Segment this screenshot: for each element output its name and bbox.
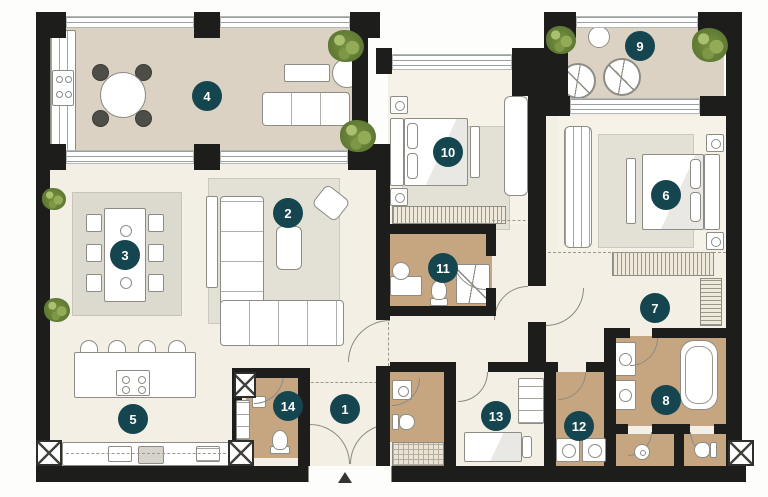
wall-segment [528, 96, 546, 286]
pillow [407, 153, 418, 179]
wall-segment [652, 328, 730, 338]
room-marker-5[interactable]: 5 [118, 404, 148, 434]
wall-segment [652, 424, 690, 434]
wall-segment [390, 362, 456, 372]
bed-bench [626, 158, 636, 224]
bed-bench [470, 126, 480, 178]
room-marker-4[interactable]: 4 [192, 81, 222, 111]
plant [546, 26, 576, 54]
maid-bed [464, 432, 522, 462]
plant [340, 120, 376, 152]
room-marker-10[interactable]: 10 [433, 137, 463, 167]
room-marker-8[interactable]: 8 [651, 385, 681, 415]
plant [328, 30, 364, 62]
room-marker-11[interactable]: 11 [428, 253, 458, 283]
room-marker-13[interactable]: 13 [481, 401, 511, 431]
wardrobe [700, 278, 722, 326]
toilet-bowl [399, 414, 415, 430]
room-marker-6[interactable]: 6 [651, 180, 681, 210]
vanity-counter [390, 276, 422, 296]
dining-chair [148, 274, 164, 292]
plant [692, 28, 728, 62]
wall-segment [544, 96, 570, 116]
shower-head [634, 444, 650, 460]
window [392, 54, 512, 70]
column [728, 440, 754, 466]
dining-chair [148, 214, 164, 232]
shaft [234, 372, 256, 398]
wall-segment [388, 224, 492, 234]
floor-plan: 1 2 3 4 5 6 7 8 9 10 11 12 13 14 [0, 0, 768, 497]
wall-segment [444, 372, 456, 466]
wall-segment [726, 12, 742, 472]
toilet-bowl [431, 280, 447, 300]
railing [220, 16, 350, 28]
window [66, 150, 194, 164]
wall-segment [486, 224, 496, 256]
wall-segment [512, 48, 546, 96]
dining-chair [86, 214, 102, 232]
console-table [206, 196, 218, 288]
sofa-section-horizontal [220, 300, 344, 346]
outdoor-chair [92, 110, 109, 127]
pillow [690, 159, 701, 189]
cooktop [116, 370, 150, 396]
railing [576, 16, 698, 28]
appliance [196, 446, 220, 462]
bathtub [680, 340, 718, 410]
nightstand [390, 188, 408, 206]
wall-segment [36, 12, 66, 38]
room-marker-9[interactable]: 9 [625, 31, 655, 61]
tall-cabinet [504, 96, 528, 196]
toilet [710, 442, 717, 458]
wall-segment [612, 424, 628, 434]
room-marker-1[interactable]: 1 [330, 394, 360, 424]
wall-segment [486, 288, 496, 316]
railing [66, 16, 194, 28]
dryer [582, 438, 606, 462]
vanity-sink [392, 262, 410, 280]
dashed-line [548, 252, 726, 253]
wardrobe [564, 126, 592, 248]
pillow [522, 436, 532, 458]
wall-segment [674, 430, 684, 468]
room-marker-3[interactable]: 3 [110, 240, 140, 270]
wall-segment [194, 12, 220, 38]
room-marker-12[interactable]: 12 [564, 411, 594, 441]
wall-segment [298, 368, 310, 468]
wall-segment [194, 144, 220, 170]
plant [42, 188, 66, 210]
washer [556, 438, 580, 462]
headboard [390, 118, 404, 186]
grill [52, 70, 74, 106]
outdoor-round-table [100, 72, 146, 118]
room-marker-7[interactable]: 7 [640, 293, 670, 323]
wall-segment [388, 306, 492, 316]
dashed-line [306, 382, 382, 383]
nightstand [706, 134, 724, 152]
wall-segment [714, 424, 730, 434]
entry-arrow [338, 472, 352, 483]
plant [44, 298, 70, 322]
tile-floor [392, 442, 444, 466]
room-marker-2[interactable]: 2 [273, 198, 303, 228]
lounge-chair [603, 58, 641, 96]
storage-niche [236, 400, 250, 440]
coffee-table [276, 226, 302, 270]
room-marker-14[interactable]: 14 [273, 391, 303, 421]
pillow [690, 192, 701, 222]
wall-segment [376, 366, 390, 466]
counter-centerline [66, 453, 226, 454]
column [228, 440, 254, 466]
nightstand [706, 232, 724, 250]
wall-segment [36, 144, 66, 170]
toilet [392, 414, 399, 430]
outdoor-sofa [262, 92, 350, 126]
wardrobe [392, 206, 506, 224]
wall-segment [376, 48, 392, 74]
outdoor-coffee-table [284, 64, 330, 82]
wall-segment [604, 328, 630, 338]
pillow [407, 123, 418, 149]
round-side-table [588, 26, 610, 48]
toilet-bowl [272, 430, 288, 450]
dining-chair [86, 274, 102, 292]
column [36, 440, 62, 466]
wardrobe [612, 252, 714, 276]
wall-segment [700, 96, 728, 116]
wall-segment [528, 322, 546, 366]
shelf-unit [518, 378, 544, 424]
wall-segment [36, 12, 50, 468]
dining-chair [148, 244, 164, 262]
dining-chair [86, 244, 102, 262]
nightstand [390, 96, 408, 114]
kitchen-sink [108, 446, 132, 462]
window [570, 98, 700, 114]
window [220, 150, 348, 164]
headboard [704, 154, 720, 230]
toilet-bowl [694, 442, 710, 458]
wall-segment [544, 362, 556, 466]
appliance [138, 446, 164, 464]
